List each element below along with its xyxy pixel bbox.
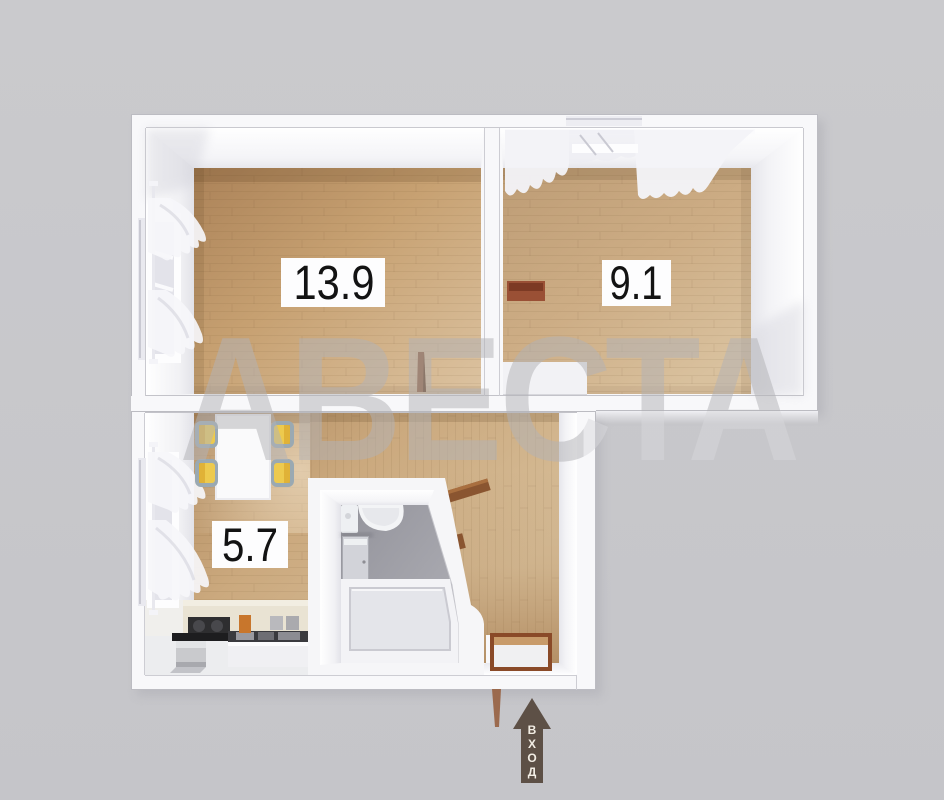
svg-text:В: В [528,723,537,737]
svg-text:Х: Х [528,737,536,751]
svg-text:Д: Д [528,765,537,779]
svg-text:О: О [527,751,536,765]
svg-text:5.7: 5.7 [222,518,278,571]
